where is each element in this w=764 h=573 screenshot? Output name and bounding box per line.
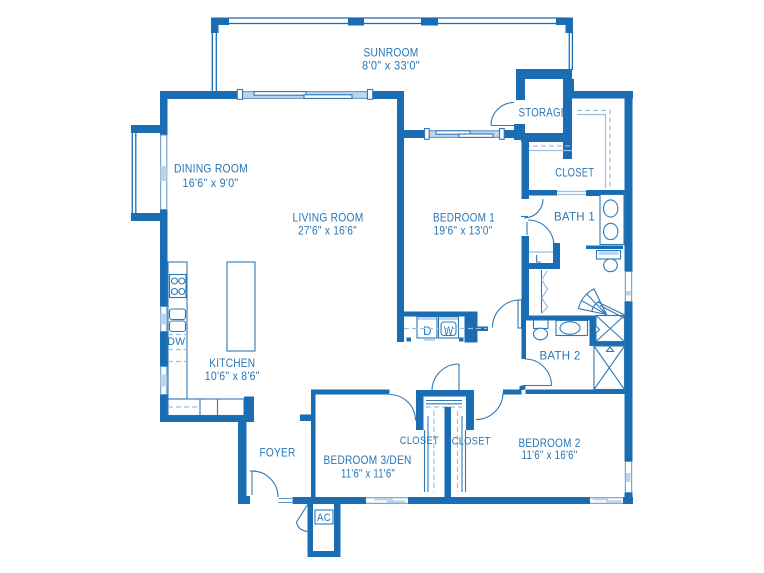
svg-text:27'6" x 16'6": 27'6" x 16'6" xyxy=(298,226,357,238)
svg-text:FOYER: FOYER xyxy=(260,446,296,460)
svg-text:SUNROOM: SUNROOM xyxy=(364,46,419,60)
svg-text:16'6" x 9'0": 16'6" x 9'0" xyxy=(183,178,239,190)
svg-text:W: W xyxy=(444,326,454,338)
svg-text:8'0" x 33'0": 8'0" x 33'0" xyxy=(362,61,420,73)
svg-text:KITCHEN: KITCHEN xyxy=(209,356,255,370)
svg-text:AC: AC xyxy=(317,512,331,524)
svg-text:BATH 2: BATH 2 xyxy=(540,349,581,363)
svg-text:CLOSET: CLOSET xyxy=(452,435,491,447)
svg-text:CLOSET: CLOSET xyxy=(555,166,594,180)
svg-text:LIVING ROOM: LIVING ROOM xyxy=(293,211,364,225)
svg-text:DW: DW xyxy=(167,336,185,348)
svg-text:BEDROOM 2: BEDROOM 2 xyxy=(519,436,581,450)
svg-text:10'6" x 8'6": 10'6" x 8'6" xyxy=(205,371,260,383)
svg-text:19'6" x 13'0": 19'6" x 13'0" xyxy=(434,226,493,238)
svg-text:L: L xyxy=(535,254,541,266)
svg-text:BATH 1: BATH 1 xyxy=(554,210,595,224)
svg-text:D: D xyxy=(423,326,432,338)
svg-text:STORAGE: STORAGE xyxy=(519,105,568,119)
svg-text:CLOSET: CLOSET xyxy=(400,435,439,447)
svg-text:11'6" x 16'6": 11'6" x 16'6" xyxy=(522,450,578,462)
svg-text:BEDROOM 3/DEN: BEDROOM 3/DEN xyxy=(324,453,412,467)
svg-text:BEDROOM 1: BEDROOM 1 xyxy=(433,211,495,225)
svg-text:DINING ROOM: DINING ROOM xyxy=(174,162,248,176)
svg-text:11'6" x 11'6": 11'6" x 11'6" xyxy=(341,468,395,480)
